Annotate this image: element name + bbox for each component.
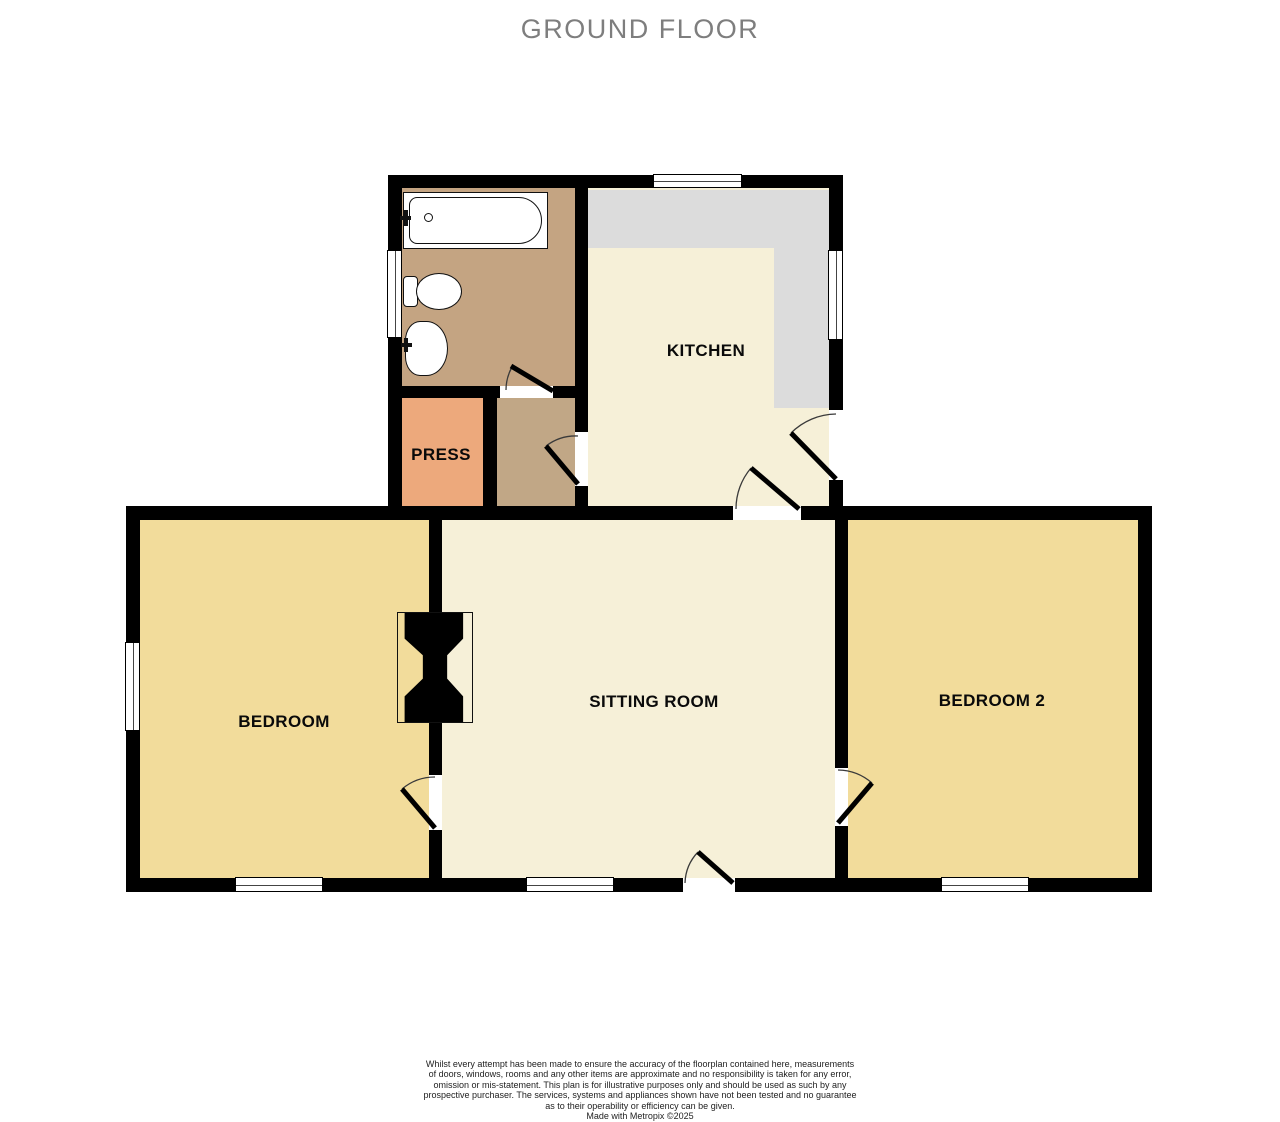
bedroom-2-window — [941, 877, 1029, 892]
kitchen-sitting-door-opening — [733, 506, 801, 520]
bedroom-floor — [132, 512, 432, 884]
toilet-bowl-icon — [416, 273, 462, 310]
floorplan-canvas: GROUND FLOOR — [0, 0, 1280, 1122]
kitchen-top-window — [653, 174, 742, 188]
room-label-sitting-room: SITTING ROOM — [589, 692, 718, 712]
sink-tap-icon — [404, 338, 408, 352]
made-with-credit: Made with Metropix ©2025 — [0, 1111, 1280, 1121]
room-label-bedroom-2: BEDROOM 2 — [939, 691, 1046, 711]
page-title: GROUND FLOOR — [0, 14, 1280, 45]
wall-segment — [483, 398, 497, 520]
sink-icon — [405, 321, 448, 376]
wall-segment — [388, 386, 503, 398]
wall-segment — [429, 830, 442, 878]
hallway-floor — [490, 390, 588, 515]
wall-segment — [835, 513, 848, 768]
bedroom-door-opening — [429, 775, 442, 830]
kitchen-right-window — [828, 250, 843, 340]
wall-segment — [1138, 506, 1152, 892]
wall-segment — [388, 188, 402, 513]
wall-segment — [388, 175, 843, 188]
wall-segment — [835, 826, 848, 878]
wall-segment — [575, 188, 588, 433]
room-label-kitchen: KITCHEN — [667, 341, 745, 361]
bedroom-bottom-window — [235, 877, 323, 892]
hallway-kitchen-door-opening — [575, 432, 588, 486]
bedroom-left-window — [125, 642, 140, 731]
bath-drain-icon — [424, 213, 433, 222]
bedroom-2-door-opening — [835, 768, 848, 826]
kitchen-exterior-door-opening — [829, 410, 843, 480]
sitting-room-window — [526, 877, 614, 892]
bathroom-door-opening — [500, 386, 553, 398]
chimney-breast-outline — [397, 612, 473, 723]
kitchen-counter-right — [774, 190, 829, 408]
disclaimer-text: Whilst every attempt has been made to en… — [0, 1059, 1280, 1111]
bathroom-window — [387, 250, 402, 338]
bath-tap-icon — [404, 210, 408, 226]
front-door-opening — [683, 878, 735, 892]
room-label-press: PRESS — [411, 445, 471, 465]
wall-segment — [429, 513, 442, 612]
room-label-bedroom: BEDROOM — [238, 712, 330, 732]
wall-segment — [429, 722, 442, 775]
wall-segment — [801, 506, 1152, 520]
